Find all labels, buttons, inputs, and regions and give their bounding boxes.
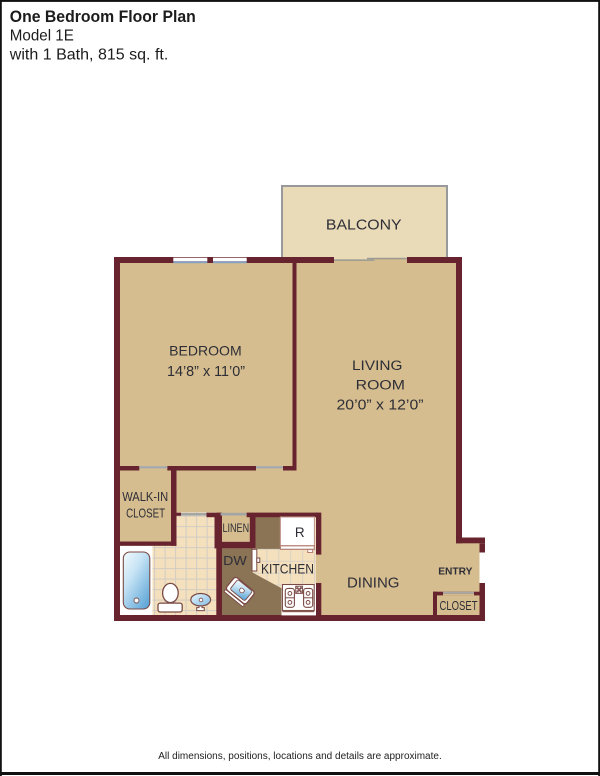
svg-text:DINING: DINING [347, 575, 400, 592]
svg-text:WALK-IN: WALK-IN [122, 490, 168, 504]
svg-text:DW: DW [223, 554, 247, 568]
svg-text:Model 1E: Model 1E [10, 28, 74, 45]
svg-text:with 1 Bath, 815 sq. ft.: with 1 Bath, 815 sq. ft. [9, 46, 169, 63]
svg-text:LINEN: LINEN [223, 521, 250, 535]
svg-text:R: R [295, 525, 305, 540]
svg-text:CLOSET: CLOSET [440, 598, 478, 613]
svg-text:ENTRY: ENTRY [438, 566, 472, 578]
svg-text:BALCONY: BALCONY [326, 217, 402, 234]
svg-text:CLOSET: CLOSET [126, 506, 165, 520]
svg-text:All dimensions, positions, loc: All dimensions, positions, locations and… [158, 751, 442, 762]
svg-text:One Bedroom Floor Plan: One Bedroom Floor Plan [10, 7, 196, 26]
svg-text:KITCHEN: KITCHEN [261, 561, 314, 577]
svg-text:20’0” x 12’0”: 20’0” x 12’0” [337, 398, 424, 414]
svg-text:BEDROOM: BEDROOM [169, 343, 242, 359]
svg-text:14’8” x 11’0”: 14’8” x 11’0” [167, 364, 245, 380]
svg-text:ROOM: ROOM [356, 377, 405, 392]
svg-text:LIVING: LIVING [352, 358, 402, 373]
